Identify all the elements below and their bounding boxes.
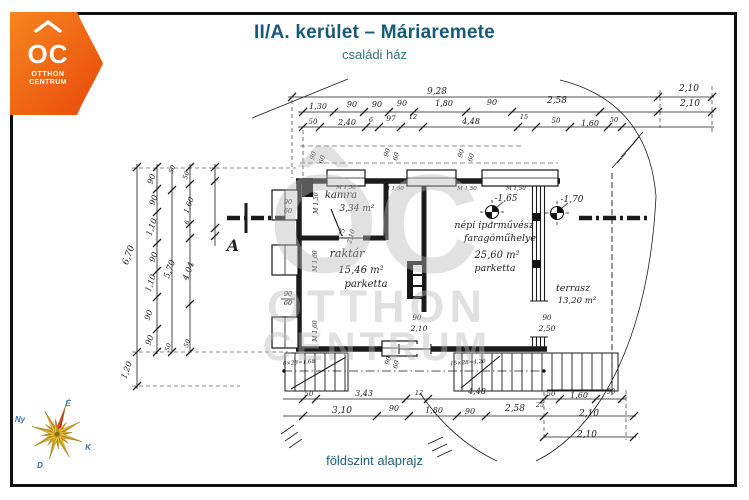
plan-label: 90 xyxy=(372,100,382,109)
logo-mark: OC xyxy=(28,39,69,69)
plan-label: 2,10 xyxy=(678,84,699,94)
plan-label: 97 xyxy=(386,114,396,123)
plan-label: 1,10 xyxy=(143,273,158,293)
plan-label: 50 xyxy=(552,117,561,125)
plan-label: 2,58 xyxy=(546,96,567,106)
plan-label: 3,43 xyxy=(355,389,373,398)
plan-label: 90 xyxy=(465,407,475,416)
plan-label: 90 xyxy=(144,334,156,347)
walk-line xyxy=(282,369,545,372)
compass-rays xyxy=(32,404,82,459)
plan-label: terrasz xyxy=(556,283,591,294)
brand-badge: OC OTTHON CENTRUM xyxy=(10,12,106,115)
compass-east-label: K xyxy=(85,443,92,452)
plan-label: 90 xyxy=(389,404,399,413)
plan-label: 25,60 m² xyxy=(473,250,519,261)
plan-label: 90 xyxy=(143,309,155,322)
plan-label: 2,50 xyxy=(538,324,556,333)
plan-label: 1,80 xyxy=(425,406,443,415)
plan-label: 90 xyxy=(146,173,158,186)
watermark: ÔC OTTHON CENTRUM xyxy=(263,145,491,369)
plan-caption: földszint alaprajz xyxy=(0,453,749,468)
plan-label: 2,10 xyxy=(578,409,599,419)
plan-label: 1,20 xyxy=(119,360,134,380)
compass-hub xyxy=(55,432,59,436)
plan-label: 4,48 xyxy=(467,387,486,396)
plan-label: 50 xyxy=(607,388,616,396)
walk-dot xyxy=(282,369,285,372)
floorplan: 9,282,101,309090901,80902,582,10502,4069… xyxy=(0,0,749,500)
plan-label: 25 xyxy=(535,401,544,409)
plan-label: 50 xyxy=(167,164,177,175)
plan-label: 90 xyxy=(148,194,160,207)
plan-label: 3,10 xyxy=(332,406,352,416)
plan-label: 4,48 xyxy=(461,117,480,126)
plan-label: -1,65 xyxy=(494,194,517,204)
plan-label: 50 xyxy=(305,390,314,398)
plan-label: 2,10 xyxy=(576,430,597,440)
plan-label: 2,58 xyxy=(504,404,525,414)
compass-west-label: Ny xyxy=(15,415,26,424)
plan-label: 2,40 xyxy=(337,118,356,127)
logo-line1: OTTHON xyxy=(31,71,64,78)
plan-label: 50 xyxy=(547,390,556,398)
plan-label: 1,30 xyxy=(309,102,327,111)
plan-label: 90 xyxy=(148,251,160,264)
watermark-line2: CENTRUM xyxy=(263,325,491,369)
plan-label: 1,60 xyxy=(570,391,588,400)
listing-image: II/A. kerület – Máriaremete családi ház … xyxy=(0,0,749,500)
logo-line2: CENTRUM xyxy=(29,79,67,86)
page-title: II/A. kerület – Máriaremete xyxy=(0,22,749,44)
plan-label: 6 xyxy=(369,116,373,124)
plan-label: 9,28 xyxy=(427,87,447,97)
plan-label: 50 xyxy=(182,338,192,349)
plan-label: 90 xyxy=(543,314,552,322)
walk-dot xyxy=(542,369,545,372)
watermark-mark: ÔC xyxy=(269,145,479,302)
plan-label: 5,70 xyxy=(162,258,178,280)
plan-label: 90 xyxy=(487,98,497,107)
plan-label: 1,80 xyxy=(435,99,453,108)
plan-label: 90 xyxy=(397,99,407,108)
plan-label: M 1,50 xyxy=(505,186,526,192)
compass-north-label: É xyxy=(65,399,71,408)
page-subtitle: családi ház xyxy=(0,47,749,62)
plan-label: 1,60 xyxy=(182,196,196,215)
plan-label: 12 xyxy=(409,113,417,121)
plan-label: -1,70 xyxy=(560,195,583,205)
plan-label: 50 xyxy=(610,116,618,124)
plan-label: 1,60 xyxy=(581,119,599,128)
plan-label: 50 xyxy=(309,118,318,126)
plan-label: 12 xyxy=(415,389,423,397)
plan-label: 4,04 xyxy=(181,261,197,283)
plan-label: 15 xyxy=(520,113,528,121)
plan-label: 6,70 xyxy=(121,244,137,267)
plan-label: 2,10 xyxy=(679,99,700,109)
plan-label: 90 xyxy=(347,100,357,109)
plan-label: 13,20 m² xyxy=(558,296,597,306)
plan-label: A xyxy=(225,236,239,255)
plan-label: parketta xyxy=(475,263,516,274)
